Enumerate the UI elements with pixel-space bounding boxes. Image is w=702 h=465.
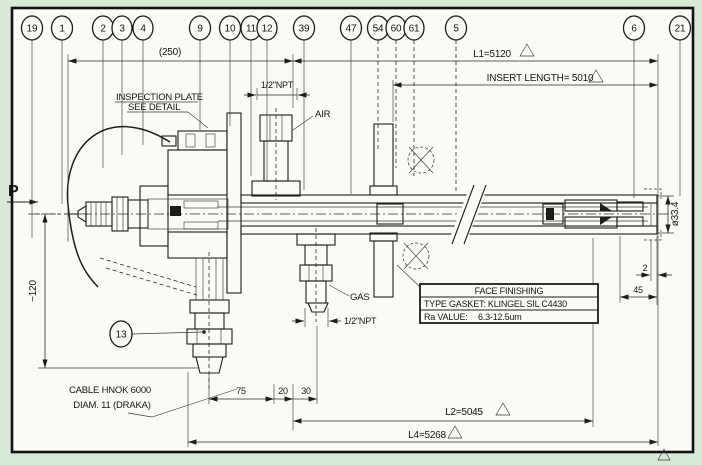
svg-text:61: 61 bbox=[409, 24, 420, 35]
balloon-19: 19 bbox=[22, 16, 43, 40]
table-ra-label: Ra VALUE: bbox=[424, 312, 468, 322]
dim-20: 20 bbox=[278, 386, 288, 396]
dim-45: 45 bbox=[633, 285, 643, 295]
dim-120: ~120 bbox=[28, 280, 39, 302]
svg-text:19: 19 bbox=[27, 24, 38, 35]
svg-text:13: 13 bbox=[116, 330, 127, 341]
balloon-21: 21 bbox=[670, 16, 691, 40]
table-gasket-row: TYPE GASKET: KLINGEL SIL C4430 bbox=[424, 299, 567, 309]
cable-label-line2: DIAM. 11 (DRAKA) bbox=[73, 400, 150, 411]
dim-diameter: ø33.4 bbox=[670, 201, 681, 226]
svg-text:39: 39 bbox=[299, 24, 310, 35]
balloon-4: 4 bbox=[133, 16, 153, 40]
air-label: AIR bbox=[315, 109, 331, 120]
dim-l2: L2=5045 bbox=[445, 407, 483, 418]
electrode-contact bbox=[170, 206, 181, 216]
dim-insert-length: INSERT LENGTH= 5010 bbox=[487, 73, 594, 84]
table-ra-value: 6.3-12.5um bbox=[478, 312, 522, 322]
cable-label-line1: CABLE HNOK 6000 bbox=[69, 385, 151, 396]
balloon-61: 61 bbox=[404, 16, 424, 40]
dim-l1: L1=5120 bbox=[473, 49, 511, 60]
table-title: FACE FINISHING bbox=[475, 286, 544, 296]
see-detail-label: SEE DETAIL bbox=[128, 102, 180, 113]
balloon-47: 47 bbox=[341, 16, 362, 40]
dim-npt-air: 1/2"NPT bbox=[261, 80, 294, 90]
svg-text:2: 2 bbox=[100, 24, 106, 35]
dim-npt-gas: 1/2"NPT bbox=[344, 316, 377, 326]
balloon-9: 9 bbox=[190, 16, 211, 40]
balloon-3: 3 bbox=[112, 16, 132, 40]
svg-text:11: 11 bbox=[246, 24, 257, 35]
balloon-5: 5 bbox=[446, 16, 467, 40]
balloon-60: 60 bbox=[386, 16, 406, 40]
gas-label: GAS bbox=[350, 292, 369, 303]
dim-2: 2 bbox=[643, 263, 648, 273]
svg-text:9: 9 bbox=[197, 24, 203, 35]
svg-text:3: 3 bbox=[119, 24, 125, 35]
balloon-1: 1 bbox=[52, 16, 73, 40]
balloon-6: 6 bbox=[624, 16, 645, 40]
dim-l4: L4=5268 bbox=[408, 430, 446, 441]
balloon-12: 12 bbox=[257, 16, 277, 40]
balloon-13: 13 bbox=[110, 321, 132, 347]
dim-75: 75 bbox=[236, 386, 246, 396]
svg-text:5: 5 bbox=[453, 24, 459, 35]
pressure-label: P bbox=[8, 183, 19, 200]
balloon-10: 10 bbox=[220, 16, 241, 40]
svg-text:21: 21 bbox=[675, 24, 686, 35]
svg-text:12: 12 bbox=[262, 24, 273, 35]
technical-drawing: (250) L1=5120 INSERT LENGTH= 5010 1/2"NP… bbox=[0, 0, 702, 465]
svg-text:10: 10 bbox=[225, 24, 236, 35]
balloon-2: 2 bbox=[93, 16, 114, 40]
svg-text:4: 4 bbox=[140, 24, 146, 35]
drawing-page: (250) L1=5120 INSERT LENGTH= 5010 1/2"NP… bbox=[0, 0, 702, 465]
balloon-39: 39 bbox=[294, 16, 315, 40]
svg-text:47: 47 bbox=[346, 24, 357, 35]
dim-30: 30 bbox=[301, 386, 311, 396]
svg-text:6: 6 bbox=[631, 24, 637, 35]
svg-text:54: 54 bbox=[373, 24, 384, 35]
svg-text:1: 1 bbox=[59, 24, 65, 35]
svg-text:60: 60 bbox=[391, 24, 402, 35]
dim-250: (250) bbox=[159, 47, 181, 58]
